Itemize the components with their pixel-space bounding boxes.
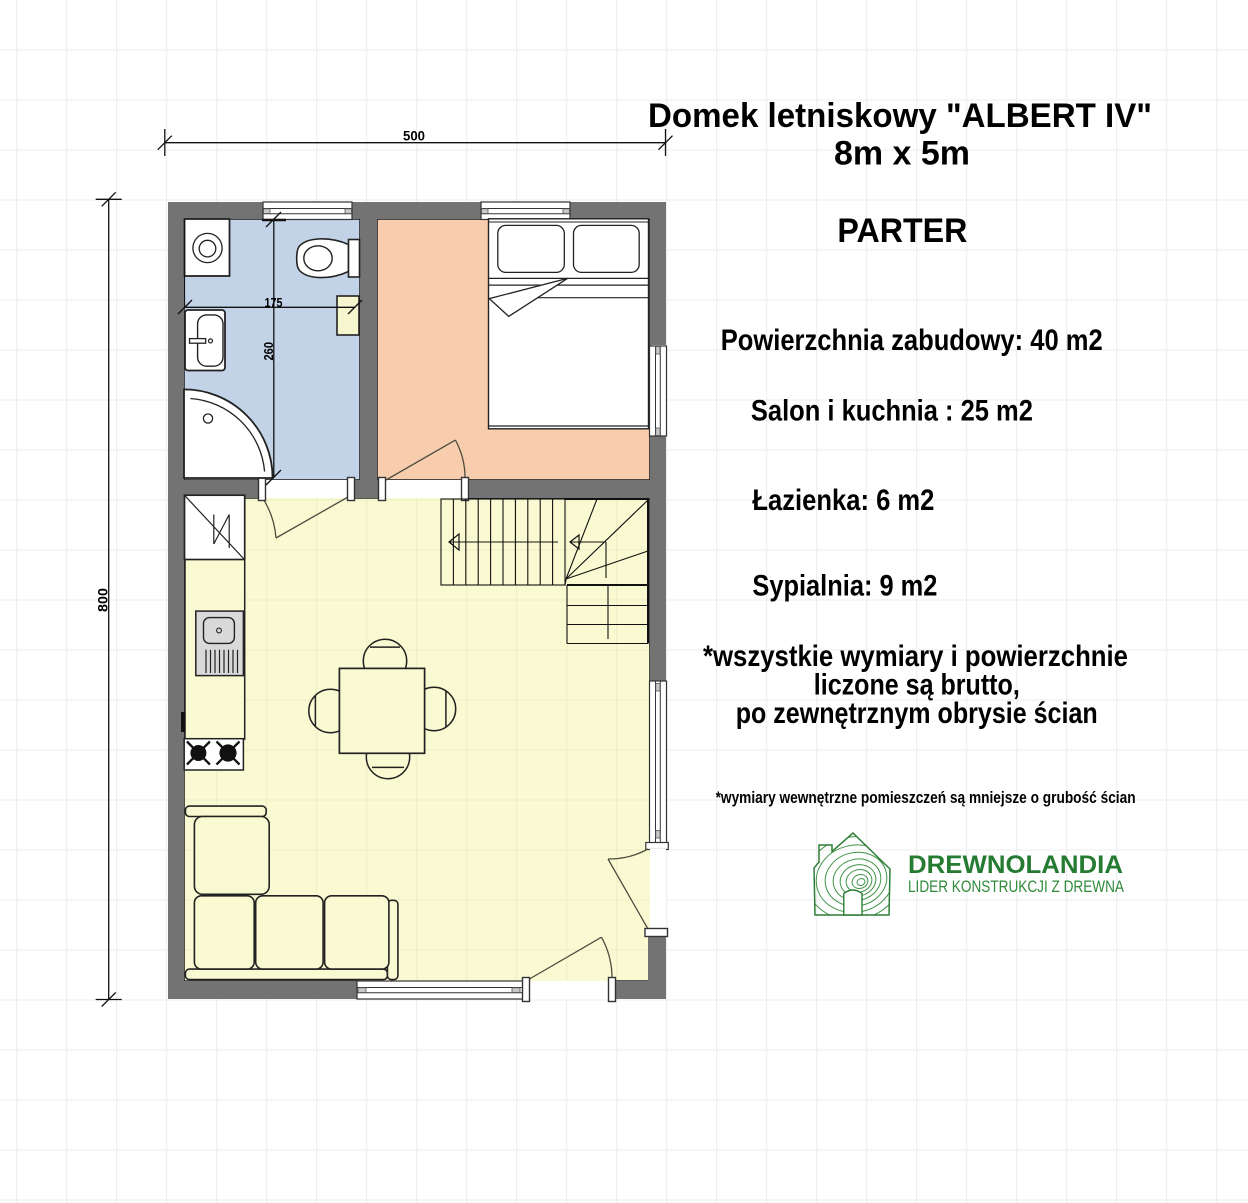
svg-text:8m x 5m: 8m x 5m [834, 135, 970, 173]
svg-text:500: 500 [403, 129, 425, 144]
svg-text:Łazienka: 6 m2: Łazienka: 6 m2 [752, 484, 934, 517]
svg-text:Salon i kuchnia : 25 m2: Salon i kuchnia : 25 m2 [751, 395, 1033, 428]
svg-text:PARTER: PARTER [837, 212, 967, 250]
svg-text:175: 175 [265, 295, 283, 310]
svg-text:800: 800 [96, 588, 111, 612]
svg-text:Domek letniskowy "ALBERT IV": Domek letniskowy "ALBERT IV" [648, 97, 1152, 135]
svg-text:DREWNOLANDIA: DREWNOLANDIA [908, 851, 1123, 879]
svg-text:260: 260 [261, 342, 276, 361]
svg-text:LIDER KONSTRUKCJI Z DREWNA: LIDER KONSTRUKCJI Z DREWNA [908, 878, 1124, 896]
svg-text:Sypialnia: 9 m2: Sypialnia: 9 m2 [752, 570, 937, 603]
svg-text:*wymiary wewnętrzne pomieszcze: *wymiary wewnętrzne pomieszczeń są mniej… [716, 788, 1136, 807]
svg-text:po zewnętrznym obrysie ścian: po zewnętrznym obrysie ścian [736, 697, 1098, 730]
svg-text:Powierzchnia zabudowy: 40 m2: Powierzchnia zabudowy: 40 m2 [721, 324, 1103, 357]
